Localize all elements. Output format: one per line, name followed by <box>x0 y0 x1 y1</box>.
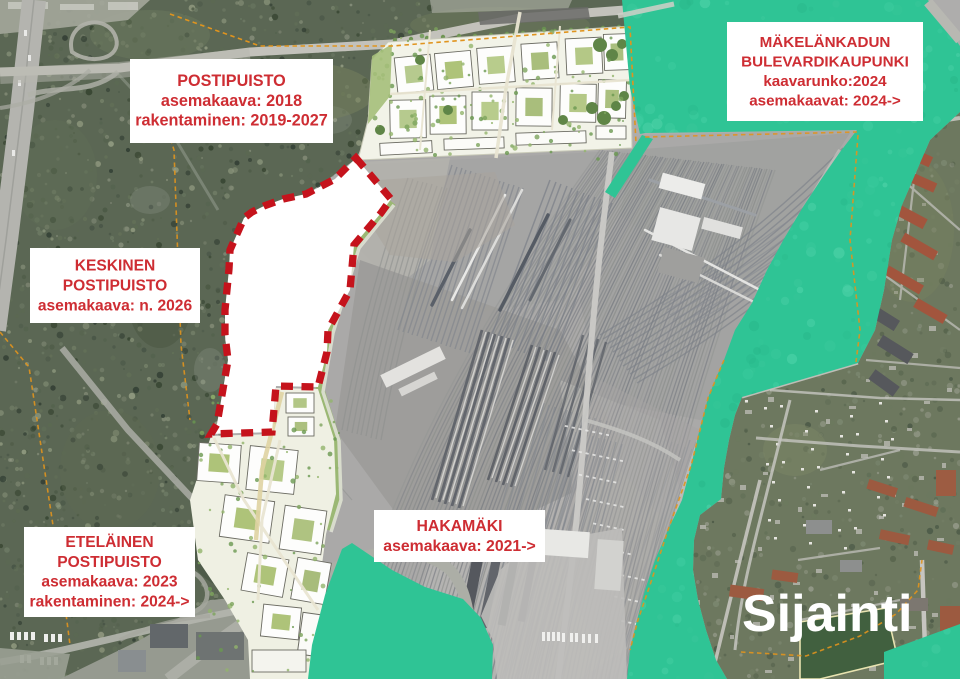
svg-text:asemakaavat: 2024->: asemakaavat: 2024-> <box>749 92 901 109</box>
svg-text:BULEVARDIKAUPUNKI: BULEVARDIKAUPUNKI <box>741 53 909 70</box>
svg-text:MÄKELÄNKADUN: MÄKELÄNKADUN <box>760 34 891 51</box>
svg-text:POSTIPUISTO: POSTIPUISTO <box>57 554 162 571</box>
svg-text:kaavarunko:2024: kaavarunko:2024 <box>763 73 887 90</box>
svg-text:POSTIPUISTO: POSTIPUISTO <box>177 72 286 90</box>
svg-text:Sijainti: Sijainti <box>742 585 912 643</box>
svg-text:ETELÄINEN: ETELÄINEN <box>65 533 153 551</box>
svg-text:asemakaava: n. 2026: asemakaava: n. 2026 <box>38 297 193 314</box>
svg-text:rakentaminen: 2019-2027: rakentaminen: 2019-2027 <box>135 112 328 130</box>
svg-text:asemakaava: 2023: asemakaava: 2023 <box>41 574 177 591</box>
svg-text:rakentaminen: 2024->: rakentaminen: 2024-> <box>30 594 190 611</box>
svg-text:KESKINEN: KESKINEN <box>75 257 156 274</box>
svg-text:asemakaava: 2021->: asemakaava: 2021-> <box>383 538 535 555</box>
svg-text:asemakaava: 2018: asemakaava: 2018 <box>161 92 302 110</box>
svg-text:HAKAMÄKI: HAKAMÄKI <box>417 517 503 535</box>
svg-text:POSTIPUISTO: POSTIPUISTO <box>63 277 168 294</box>
